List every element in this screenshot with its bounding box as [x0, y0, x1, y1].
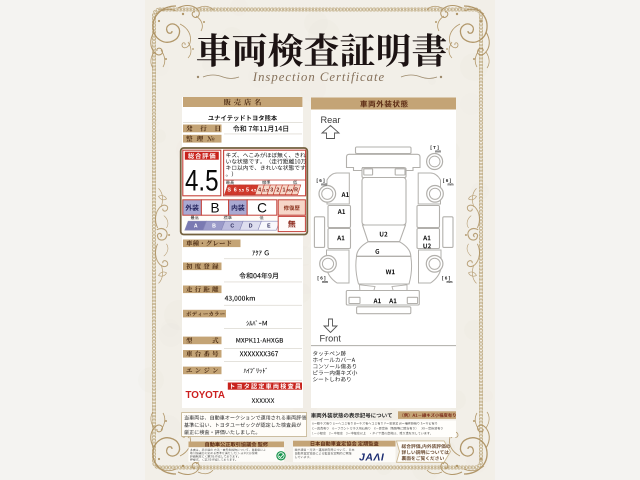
svg-text:Front: Front	[320, 334, 342, 344]
svg-text:A: A	[194, 224, 198, 230]
svg-text:C: C	[257, 200, 267, 215]
svg-text:4.5: 4.5	[185, 164, 219, 197]
svg-text:mm: mm	[446, 280, 452, 284]
svg-text:JAΛI: JAΛI	[359, 452, 385, 464]
svg-text:2: 2	[276, 188, 279, 194]
svg-text:1: 1	[283, 188, 286, 194]
svg-text:mm: mm	[447, 182, 453, 186]
svg-text:mm: mm	[322, 280, 328, 284]
svg-text:5.5: 5.5	[239, 189, 244, 193]
svg-text:mm: mm	[321, 182, 327, 186]
svg-text:6: 6	[234, 188, 237, 194]
svg-text:R: R	[294, 188, 298, 194]
svg-text:C: C	[230, 224, 234, 230]
svg-text:TOYOTA: TOYOTA	[186, 390, 225, 401]
svg-text:D: D	[249, 224, 253, 230]
svg-text:B: B	[210, 200, 219, 215]
svg-text:B: B	[212, 224, 216, 230]
svg-text:Inspection Certificate: Inspection Certificate	[252, 70, 385, 84]
svg-text:S: S	[227, 188, 231, 194]
svg-text:E: E	[267, 224, 271, 230]
svg-text:Rear: Rear	[321, 115, 341, 125]
svg-text:mm: mm	[435, 150, 441, 154]
svg-text:3: 3	[270, 188, 273, 194]
svg-text:5: 5	[246, 188, 249, 194]
svg-text:4.5: 4.5	[251, 189, 256, 193]
svg-text:3.5: 3.5	[263, 189, 268, 193]
svg-text:4: 4	[258, 188, 261, 194]
svg-text:RA: RA	[287, 189, 293, 193]
